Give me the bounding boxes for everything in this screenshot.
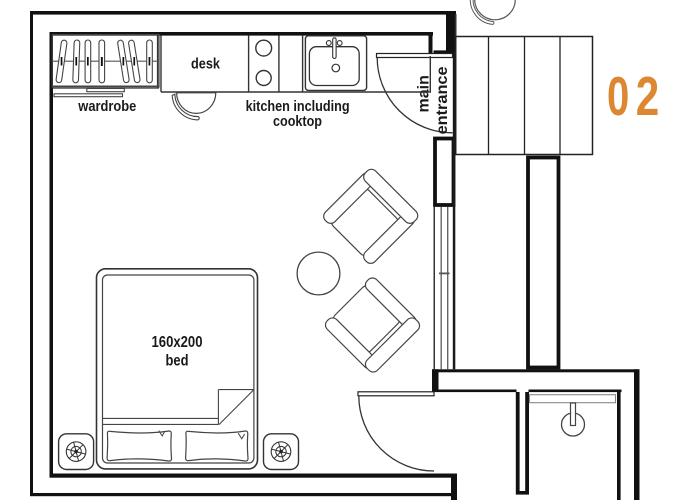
svg-text:cooktop: cooktop bbox=[273, 114, 322, 130]
svg-text:wardrobe: wardrobe bbox=[77, 99, 136, 115]
svg-text:160x200: 160x200 bbox=[152, 334, 203, 351]
svg-text:0: 0 bbox=[607, 65, 629, 127]
svg-text:bed: bed bbox=[166, 353, 189, 370]
svg-text:2: 2 bbox=[636, 65, 660, 127]
svg-text:entrance: entrance bbox=[434, 66, 451, 134]
svg-text:kitchen including: kitchen including bbox=[246, 99, 350, 115]
svg-text:desk: desk bbox=[191, 57, 221, 73]
